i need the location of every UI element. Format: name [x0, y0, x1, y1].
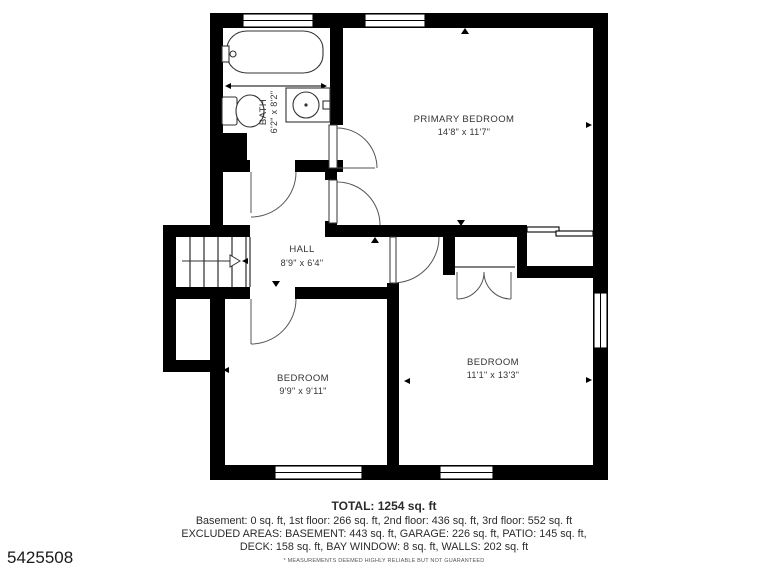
floor-plan: BATH 6'2" x 8'2" PRIMARY BEDROOM 14'8" x…: [0, 0, 768, 576]
svg-text:14'8" x 11'7": 14'8" x 11'7": [438, 127, 491, 137]
total-area: TOTAL: 1254 sq. ft: [0, 499, 768, 513]
wall-bedrooms-divider: [387, 299, 399, 465]
svg-text:BEDROOM: BEDROOM: [277, 373, 329, 384]
wall-bottom: [210, 465, 608, 480]
wall-marker: [272, 281, 280, 287]
wall-chase-block: [210, 133, 247, 162]
wall-marker: [404, 378, 410, 384]
window-bottom-right-bedroom: [440, 466, 493, 479]
door-swing-left-bedroom: [251, 299, 296, 344]
svg-text:HALL: HALL: [289, 244, 314, 255]
room-label-left-bedroom: BEDROOM 9'9" x 9'11": [277, 373, 329, 396]
room-label-hall: HALL 8'9" x 6'4": [281, 244, 324, 268]
area-line-1: Basement: 0 sq. ft, 1st floor: 266 sq. f…: [0, 515, 768, 528]
window-top-bath: [243, 14, 313, 27]
window-right-bedroom: [594, 293, 607, 348]
door-swing-primary: [329, 180, 380, 225]
svg-text:BEDROOM: BEDROOM: [467, 357, 519, 368]
svg-text:11'1" x 13'3": 11'1" x 13'3": [467, 370, 520, 380]
room-label-right-bedroom: BEDROOM 11'1" x 13'3": [467, 357, 520, 380]
wall-primary-south: [330, 225, 527, 237]
wall-marker: [371, 237, 379, 243]
stairs-direction-arrow: [182, 255, 248, 267]
wall-bath-primary-divider: [330, 28, 343, 125]
bathtub: [222, 31, 327, 89]
bay-window-strip: [527, 227, 593, 236]
svg-text:8'9" x 6'4": 8'9" x 6'4": [281, 258, 324, 268]
room-label-bath: BATH 6'2" x 8'2": [258, 91, 279, 134]
exterior-walls: [163, 13, 608, 480]
wall-bath-south-a: [210, 160, 250, 172]
wall-markers: [223, 28, 592, 384]
door-swing-bath: [251, 172, 296, 217]
svg-text:6'2" x 8'2": 6'2" x 8'2": [269, 91, 279, 134]
wall-nook-south: [517, 266, 598, 278]
measurement-disclaimer: * MEASUREMENTS DEEMED HIGHLY RELIABLE BU…: [0, 558, 768, 564]
staircase: [182, 237, 250, 287]
room-label-primary-bedroom: PRIMARY BEDROOM 14'8" x 11'7": [414, 114, 515, 137]
tub-faucet: [222, 46, 229, 62]
listing-id: 5425508: [7, 548, 73, 568]
closet-bifold-doors: [455, 267, 515, 299]
door-swing-right-bedroom: [390, 237, 439, 283]
footer-summary: TOTAL: 1254 sq. ft Basement: 0 sq. ft, 1…: [0, 499, 768, 570]
wall-hall-south: [295, 287, 399, 299]
wall-left-bedroom-west: [210, 299, 225, 480]
area-line-3: DECK: 158 sq. ft, BAY WINDOW: 8 sq. ft, …: [0, 541, 768, 554]
sink-vanity: [286, 88, 330, 122]
wall-marker: [461, 28, 469, 34]
wall-hall-east-stub: [387, 225, 399, 237]
wall-closet-west: [443, 237, 455, 275]
wall-marker: [586, 377, 592, 383]
svg-text:BATH: BATH: [258, 99, 269, 125]
wall-marker: [586, 122, 592, 128]
svg-text:9'9" x 9'11": 9'9" x 9'11": [279, 386, 326, 396]
wall-stair-bottom: [163, 287, 250, 299]
floor-plan-svg: BATH 6'2" x 8'2" PRIMARY BEDROOM 14'8" x…: [0, 0, 768, 576]
wall-right: [593, 13, 608, 480]
door-swing-ensuite: [329, 125, 377, 168]
window-top-primary: [365, 14, 425, 27]
area-line-2: EXCLUDED AREAS: BASEMENT: 443 sq. ft, GA…: [0, 528, 768, 541]
svg-text:PRIMARY BEDROOM: PRIMARY BEDROOM: [414, 114, 515, 125]
window-bottom-left-bedroom: [275, 466, 362, 479]
wall-stair-top: [163, 225, 250, 237]
